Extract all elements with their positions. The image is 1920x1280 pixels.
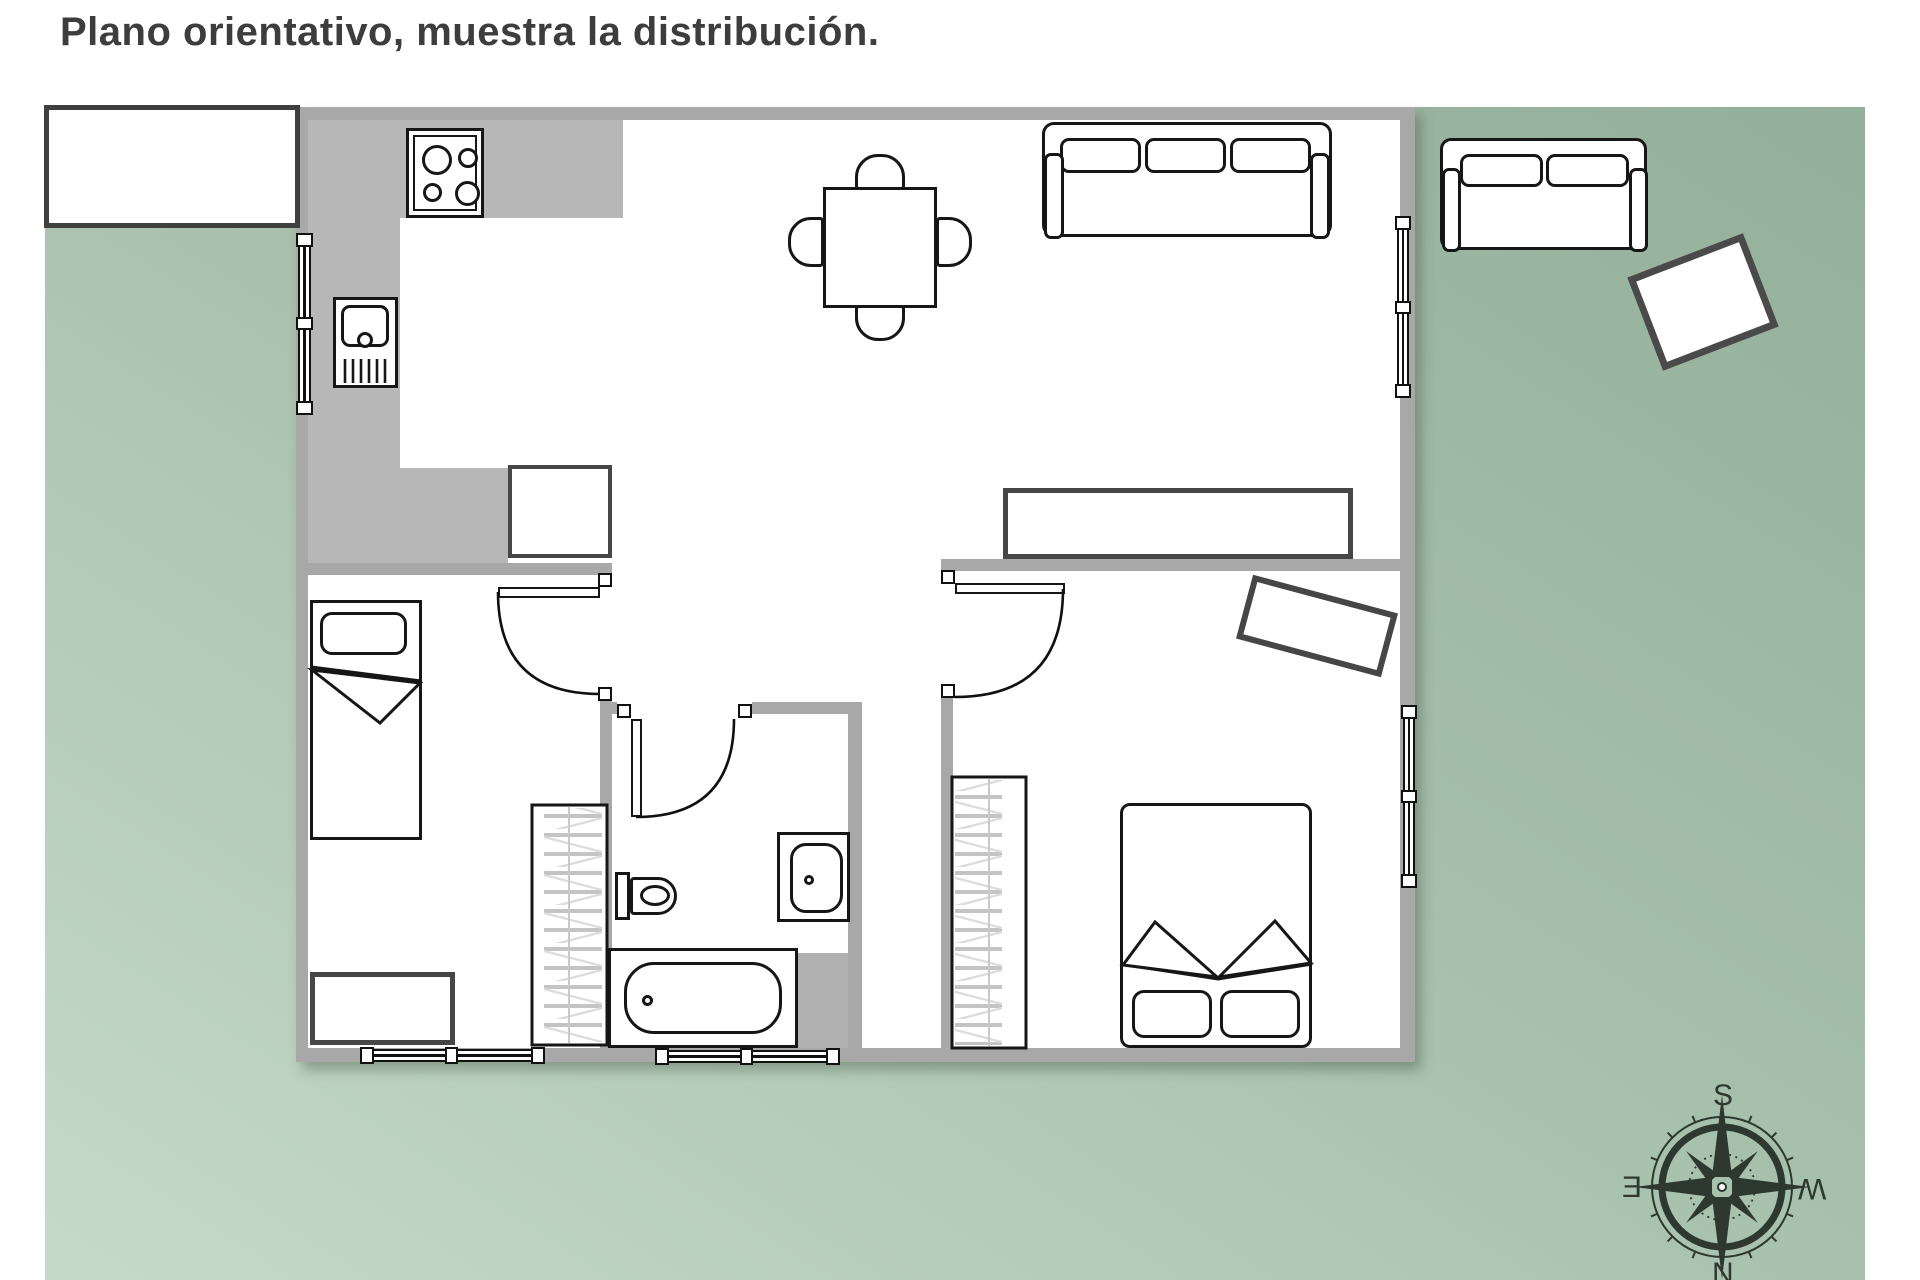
compass-label-top: S <box>1713 1079 1733 1113</box>
wardrobe-bedroom2 <box>952 777 1026 1048</box>
sofa-cushion <box>1460 154 1543 187</box>
sofa-armrest <box>1442 168 1461 252</box>
terrace-sofa-2-seat <box>1440 138 1647 250</box>
compass-label-right: W <box>1798 1171 1826 1205</box>
page-title: Plano orientativo, muestra la distribuci… <box>60 10 879 55</box>
plan-overlay <box>296 107 1415 1062</box>
double-bed-fold <box>1120 921 1312 979</box>
door-arc-bedroom1 <box>498 592 600 694</box>
screenshot-canvas: Plano orientativo, muestra la distribuci… <box>0 0 1920 1280</box>
door-arc-bathroom <box>636 719 734 817</box>
compass-label-bottom: N <box>1712 1257 1734 1280</box>
single-bed-fold <box>311 667 421 723</box>
wardrobe-bedroom1 <box>532 805 607 1045</box>
sofa-armrest <box>1629 168 1648 252</box>
sink-drainboard <box>345 359 385 383</box>
compass-label-left: E <box>1622 1171 1642 1205</box>
floor-plan <box>296 107 1415 1062</box>
sofa-cushion <box>1546 154 1629 187</box>
terrace-table <box>44 105 300 228</box>
door-arc-bedroom2 <box>955 589 1063 697</box>
compass-rose: S W N E <box>1600 1065 1850 1280</box>
